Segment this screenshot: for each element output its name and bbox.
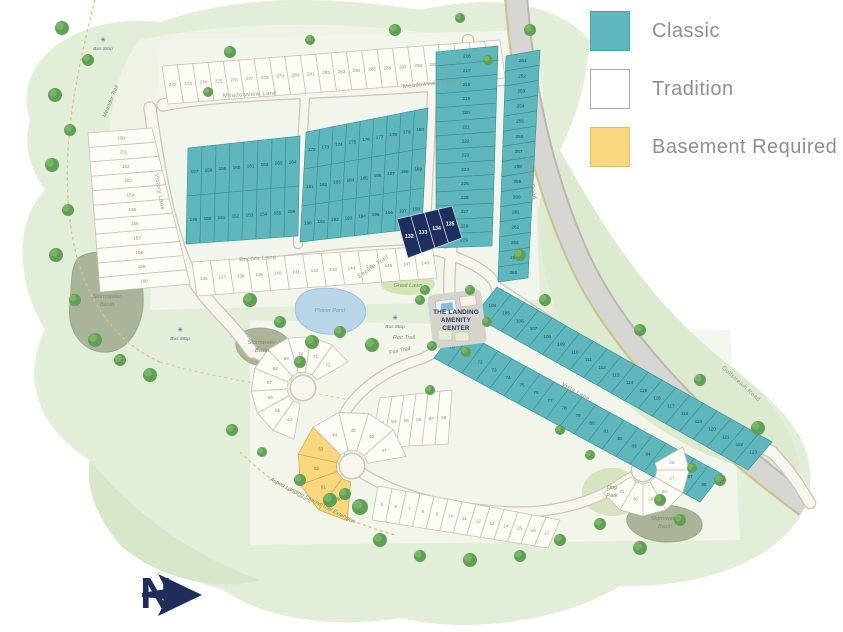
tree-icon: [305, 335, 319, 349]
lot-number: 116: [653, 396, 661, 401]
lot-number: 151: [218, 215, 226, 220]
lot-number: 158: [135, 250, 143, 255]
lot-number: 114: [626, 380, 634, 385]
lot-number: 254: [517, 104, 525, 109]
lot: 175: [345, 121, 361, 162]
legend-item-tradition: Tradition: [590, 68, 840, 110]
basin-label: Basin: [658, 524, 672, 530]
tree-icon: [48, 88, 62, 102]
amenity-label: THE LANDING: [433, 309, 479, 316]
lot-number: 226: [461, 195, 469, 200]
lot-number: 222: [462, 139, 470, 144]
legend-item-classic: Classic: [590, 10, 840, 52]
lot-number: 83: [631, 444, 637, 449]
lot-number: 198: [412, 206, 420, 211]
pond-label: Plover Pond: [315, 308, 346, 314]
lot-number: 151: [120, 150, 128, 155]
lot-number: 251: [519, 58, 527, 63]
lot-number: 162: [261, 162, 269, 167]
tree-icon: [514, 550, 526, 562]
tree-icon: [49, 248, 63, 262]
lot: 180: [412, 108, 428, 150]
lot-number: 160: [140, 278, 148, 283]
lot-number: 279: [276, 74, 284, 79]
lot: 194: [354, 196, 370, 236]
lot-number: 150: [204, 216, 212, 221]
lot-number: 252: [518, 73, 526, 78]
tree-icon: [751, 421, 765, 435]
lot-number: 253: [517, 88, 525, 93]
tree-icon: [425, 385, 435, 395]
lot-number: 280: [292, 73, 300, 78]
lot-number: 149: [190, 217, 198, 222]
basement-swatch: [590, 127, 630, 167]
lot: 149: [186, 195, 201, 244]
bus-stop-label: Bus Stop: [385, 324, 405, 330]
tree-icon: [455, 13, 465, 23]
lot-number: 272: [169, 82, 177, 87]
lot-number: 281: [307, 71, 315, 76]
north-arrow: N: [140, 572, 176, 616]
tree-icon: [463, 553, 477, 567]
tree-icon: [461, 347, 471, 357]
lot-number: 158: [205, 168, 213, 173]
lot-number: 9: [436, 511, 439, 516]
lot-number: 8: [422, 509, 425, 514]
north-arrow-icon: [140, 572, 210, 618]
tree-icon: [243, 293, 257, 307]
lot: 151: [214, 192, 229, 242]
lot-number: 192: [331, 217, 339, 222]
classic-swatch: [590, 11, 630, 51]
lot: 163: [271, 138, 286, 189]
lot-number: 29: [648, 497, 654, 502]
lot-number: 137: [218, 275, 226, 280]
basin-label: Stormwater: [248, 340, 278, 346]
lot-number: 28: [662, 489, 668, 494]
lot: 184: [343, 160, 359, 200]
lot-number: 187: [387, 171, 395, 176]
great-lawn-label: Great Lawn: [394, 283, 423, 289]
lot-number: 274: [200, 80, 208, 85]
lot-number: 16: [531, 528, 537, 533]
tree-icon: [539, 294, 551, 306]
lot-number: 155: [129, 207, 137, 212]
lot: 164: [285, 136, 300, 187]
tree-icon: [365, 338, 379, 352]
lot-number: 55: [404, 418, 410, 423]
lot-number: 177: [376, 134, 384, 139]
lot-number: 136: [200, 276, 208, 281]
lot-number: 156: [131, 221, 139, 226]
lot-number: 159: [219, 166, 227, 171]
lot: 155: [270, 187, 285, 238]
lot-number: 163: [275, 161, 283, 166]
lot-number: 197: [399, 208, 407, 213]
lot: 178: [385, 113, 401, 155]
lot-number: 216: [463, 54, 471, 59]
lot-number: 275: [215, 78, 223, 83]
bus-stop-icon: ✳: [392, 314, 398, 322]
tree-icon: [514, 249, 526, 261]
lot-number: 153: [124, 178, 132, 183]
lot-number: 79: [575, 413, 581, 418]
lot-number: 107: [530, 326, 538, 331]
lot: 195: [368, 194, 384, 234]
lot: 176: [358, 119, 374, 160]
lot-number: 221: [462, 124, 470, 129]
lot-number: 62: [314, 466, 320, 471]
lot-number: 194: [358, 214, 366, 219]
lot: 188: [397, 150, 413, 192]
lot-number: 118: [681, 411, 689, 416]
tree-icon: [415, 295, 425, 305]
tree-icon: [555, 425, 565, 435]
lot: 186: [370, 155, 386, 196]
lot-number: 78: [561, 405, 567, 410]
lot-number: 111: [585, 357, 592, 362]
lot-number: 108: [543, 334, 551, 339]
lot-number: 71: [313, 354, 319, 359]
tree-icon: [69, 294, 81, 306]
legend: Classic Tradition Basement Required: [590, 10, 840, 184]
lot-number: 134: [432, 226, 441, 232]
lot-number: 141: [292, 269, 300, 274]
lot-number: 219: [462, 96, 470, 101]
lot-number: 120: [708, 427, 716, 432]
tree-icon: [654, 494, 666, 506]
lot-number: 188: [401, 169, 409, 174]
lot-number: 146: [385, 263, 393, 268]
lot-number: 11: [462, 516, 467, 521]
lot-number: 153: [246, 213, 254, 218]
lot-number: 255: [516, 119, 524, 124]
tree-icon: [257, 447, 267, 457]
lot-number: 69: [284, 356, 290, 361]
lot-number: 105: [502, 311, 510, 316]
lot-number: 44: [332, 433, 338, 438]
lot-number: 82: [617, 436, 623, 441]
dog-park-label: Park: [606, 493, 619, 499]
lot-number: 75: [519, 383, 525, 388]
lot: 196: [381, 192, 397, 233]
lot-number: 260: [513, 194, 521, 199]
tree-icon: [55, 21, 69, 35]
lot-number: 142: [311, 268, 319, 273]
lot-number: 27: [669, 475, 675, 480]
lot-number: 133: [419, 230, 428, 236]
lot: 153: [242, 190, 257, 240]
lot-number: 61: [321, 485, 327, 490]
lot-number: 74: [505, 375, 511, 380]
lot-number: 157: [133, 235, 141, 240]
lot-number: 193: [345, 215, 353, 220]
lot-number: 56: [416, 417, 422, 422]
lot-number: 67: [267, 380, 273, 385]
lot: 157: [187, 147, 202, 197]
tree-icon: [294, 474, 306, 486]
lot-number: 10: [448, 514, 454, 519]
amenity-label: AMENITY: [441, 317, 472, 324]
lot-number: 106: [516, 318, 524, 323]
lot-number: 283: [338, 69, 346, 74]
lot-number: 224: [461, 167, 469, 172]
lot-number: 154: [260, 211, 268, 216]
lot-number: 175: [349, 139, 357, 144]
lot-number: 282: [322, 70, 330, 75]
lot-number: 76: [533, 390, 539, 395]
lot-number: 110: [571, 349, 579, 354]
lot-number: 46: [369, 434, 375, 439]
lot-number: 115: [640, 388, 648, 393]
lot-number: 13: [489, 521, 495, 526]
lot-number: 139: [255, 272, 263, 277]
lot-number: 276: [230, 77, 238, 82]
lot: 173: [318, 127, 334, 167]
lot-number: 113: [612, 372, 620, 377]
lot-number: 182: [319, 182, 327, 187]
legend-label-classic: Classic: [652, 20, 720, 43]
lot-number: 135: [446, 222, 455, 228]
lot-number: 265: [509, 270, 517, 275]
lot-number: 284: [353, 68, 361, 73]
lot-number: 196: [385, 210, 393, 215]
lot-number: 179: [403, 129, 411, 134]
lot-number: 45: [351, 428, 357, 433]
lot: 185: [356, 157, 372, 198]
lot-number: 228: [460, 223, 468, 228]
tree-icon: [274, 316, 286, 328]
lot: 192: [327, 200, 343, 239]
lot-number: 26: [669, 460, 675, 465]
lot-number: 84: [645, 451, 651, 456]
lot: 161: [243, 141, 258, 192]
lot-number: 287: [399, 64, 407, 69]
lot-number: 161: [247, 163, 255, 168]
tree-icon: [64, 124, 76, 136]
tradition-swatch: [590, 69, 630, 109]
tree-icon: [143, 368, 157, 382]
lot-number: 30: [633, 497, 639, 502]
lot-number: 152: [232, 214, 240, 219]
lot-number: 65: [275, 408, 281, 413]
lot-number: 68: [273, 366, 279, 371]
legend-item-basement: Basement Required: [590, 126, 840, 168]
lot-number: 81: [603, 428, 609, 433]
lot-number: 259: [513, 179, 521, 184]
lot-number: 72: [325, 363, 331, 368]
tree-icon: [45, 158, 59, 172]
lot: 160: [229, 142, 244, 192]
lot: 156: [284, 186, 299, 237]
lot-number: 278: [261, 75, 269, 80]
lot-number: 7: [408, 507, 411, 512]
lot: 174: [331, 124, 347, 164]
lot-number: 119: [695, 419, 703, 424]
lot-number: 66: [268, 395, 274, 400]
lot: 183: [329, 162, 345, 202]
tree-icon: [427, 341, 437, 351]
lot-number: 121: [722, 434, 730, 439]
lot-number: 190: [304, 221, 312, 226]
tree-icon: [373, 533, 387, 547]
lot-number: 138: [237, 273, 245, 278]
lot-number: 227: [461, 209, 469, 214]
lot-number: 87: [687, 474, 693, 479]
lot-number: 277: [246, 76, 254, 81]
lot-number: 173: [321, 144, 329, 149]
tree-icon: [305, 35, 315, 45]
lot-number: 262: [511, 225, 519, 230]
lot-number: 172: [308, 147, 316, 152]
lot-number: 217: [463, 68, 471, 73]
lot-number: 109: [557, 342, 565, 347]
lot-number: 6: [394, 504, 397, 509]
lot: 179: [399, 111, 415, 153]
lot-number: 132: [405, 234, 414, 240]
lot-number: 195: [372, 212, 380, 217]
bus-stop-label: Bus Stop: [93, 46, 113, 52]
lot-number: 159: [138, 264, 146, 269]
lot-number: 12: [476, 518, 482, 523]
lot: 154: [256, 189, 271, 240]
amenity-label: CENTER: [442, 325, 470, 332]
lot-number: 73: [491, 367, 497, 372]
lot-number: 17: [545, 530, 551, 535]
tree-icon: [294, 356, 306, 368]
lot-number: 180: [416, 127, 424, 132]
lot-number: 263: [511, 240, 519, 245]
lot-number: 122: [736, 442, 744, 447]
lot: 162: [257, 139, 272, 190]
lot-number: 183: [333, 180, 341, 185]
lot-number: 178: [389, 132, 397, 137]
tree-icon: [594, 518, 606, 530]
lot-number: 104: [489, 303, 497, 308]
tree-icon: [465, 285, 475, 295]
lot-number: 174: [335, 142, 343, 147]
lot: 158: [201, 145, 216, 195]
tree-icon: [203, 87, 213, 97]
lot-number: 80: [589, 421, 595, 426]
basin-label: Stormwater: [651, 516, 681, 522]
lot: 152: [228, 191, 243, 241]
lot-number: 288: [414, 63, 422, 68]
lot: 182: [316, 164, 332, 204]
lot: 159: [215, 144, 230, 194]
lot-number: 57: [429, 416, 435, 421]
lot-number: 164: [289, 159, 297, 164]
lot-number: 155: [274, 210, 282, 215]
site-plan-page: 2722732742752762772782792802812822832842…: [0, 0, 843, 632]
lot-number: 63: [318, 447, 324, 452]
lot-number: 72: [477, 360, 483, 365]
lot-number: 184: [347, 178, 355, 183]
lot: 190: [300, 204, 316, 242]
lot-number: 261: [512, 210, 520, 215]
tree-icon: [224, 46, 236, 58]
tree-icon: [687, 463, 697, 473]
lot-number: 70: [298, 352, 304, 357]
tree-icon: [334, 326, 346, 338]
lot-number: 14: [503, 523, 509, 528]
lot-number: 256: [515, 134, 523, 139]
lot: 187: [383, 153, 399, 194]
lot-number: 150: [117, 135, 125, 140]
tree-icon: [634, 324, 646, 336]
lot-number: 273: [184, 81, 192, 86]
tree-icon: [554, 534, 566, 546]
tree-icon: [226, 424, 238, 436]
lot: 172: [304, 129, 320, 169]
rec-trail-label: Rec Trail: [393, 335, 416, 341]
lot: 189: [410, 148, 426, 190]
basin-label: Stormwater: [93, 294, 123, 300]
bus-stop-icon: ✳: [100, 36, 106, 44]
lot-number: 154: [126, 193, 134, 198]
dog-park-label: Dog: [607, 485, 618, 491]
tree-icon: [714, 474, 726, 486]
lot-number: 156: [288, 209, 296, 214]
bus-stop-label: Bus Stop: [170, 336, 190, 342]
lot-number: 5: [381, 502, 384, 507]
lot-number: 157: [191, 169, 199, 174]
tree-icon: [389, 24, 401, 36]
tree-icon: [414, 550, 426, 562]
tree-icon: [62, 204, 74, 216]
tree-icon: [482, 317, 492, 327]
lot: 177: [372, 116, 388, 157]
lot-number: 144: [348, 265, 356, 270]
tree-icon: [694, 374, 706, 386]
bus-stop-icon: ✳: [177, 326, 183, 334]
tree-icon: [339, 488, 351, 500]
lot-number: 257: [515, 149, 523, 154]
legend-label-tradition: Tradition: [652, 78, 734, 101]
lot-number: 77: [547, 398, 553, 403]
tree-icon: [88, 333, 102, 347]
lot-number: 189: [414, 167, 422, 172]
lot-number: 218: [463, 82, 471, 87]
lot-number: 54: [391, 419, 397, 424]
lot-number: 176: [362, 137, 370, 142]
lot: 150: [200, 194, 215, 244]
lot: 191: [314, 202, 330, 240]
tree-icon: [352, 499, 368, 515]
legend-label-basement: Basement Required: [652, 136, 837, 159]
tree-icon: [585, 450, 595, 460]
lot-number: 258: [514, 164, 522, 169]
tree-icon: [524, 24, 536, 36]
tree-icon: [82, 54, 94, 66]
lot-number: 286: [384, 65, 392, 70]
lot-number: 140: [274, 271, 282, 276]
lot-number: 148: [421, 260, 429, 265]
lot-number: 191: [317, 219, 325, 224]
lot-number: 31: [619, 489, 625, 494]
lot-number: 117: [667, 403, 675, 408]
basin-label: Basin: [255, 348, 269, 354]
lot-number: 223: [462, 153, 470, 158]
lot-number: 225: [461, 181, 469, 186]
lot-number: 186: [374, 173, 382, 178]
lot-number: 64: [287, 417, 293, 422]
lot-number: 181: [306, 184, 314, 189]
lot: 181: [302, 167, 318, 206]
lot-number: 88: [701, 482, 707, 487]
lot-number: 123: [749, 450, 757, 455]
tree-icon: [114, 354, 126, 366]
